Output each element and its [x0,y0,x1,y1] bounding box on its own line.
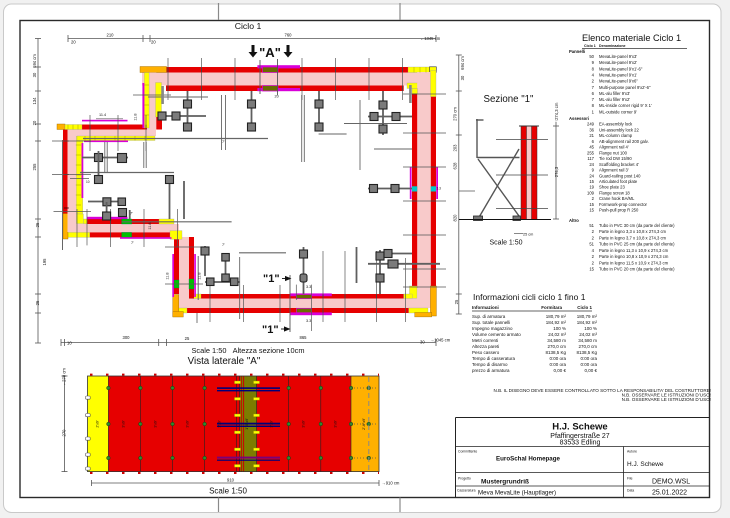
svg-text:270: 270 [62,429,67,437]
svg-text:Autore: Autore [627,450,637,454]
svg-text:Push-pull prop R 250: Push-pull prop R 250 [599,208,639,213]
svg-text:MevaLite-panel 9'x1'-6": MevaLite-panel 9'x1'-6" [599,66,643,71]
svg-text:36: 36 [589,127,594,132]
svg-text:11.8: 11.8 [198,272,202,279]
svg-text:Alignment rail 4': Alignment rail 4' [599,145,629,150]
svg-text:Multi-purpose panel 9'x2'-6": Multi-purpose panel 9'x2'-6" [599,85,651,90]
svg-text:"1": "1" [262,324,279,336]
svg-text:Parte in legno 3,3 x 10,8 x 27: Parte in legno 3,3 x 10,8 x 274,3 cm [599,229,667,234]
svg-text:255: 255 [32,163,37,171]
svg-text:↑274,3 cm: ↑274,3 cm [554,102,559,122]
svg-text:180,79 m²: 180,79 m² [546,314,567,319]
svg-text:Sup. di armatura: Sup. di armatura [472,314,506,319]
svg-text:Guard-railing post 140: Guard-railing post 140 [599,173,641,178]
svg-text:15: 15 [589,267,594,272]
svg-text:25: 25 [185,336,190,341]
svg-text:3'x9': 3'x9' [302,420,306,427]
svg-text:Alignment rail 3': Alignment rail 3' [599,168,629,173]
svg-text:21: 21 [589,133,594,138]
svg-text:Tubo in PVC 25 cm (da parte de: Tubo in PVC 25 cm (da parte del cliente) [599,242,675,247]
svg-text:10: 10 [67,341,72,346]
svg-text:30: 30 [460,75,465,80]
svg-text:DEMO.WSL: DEMO.WSL [652,479,690,486]
svg-text:MevaLite-panel 9'x1': MevaLite-panel 9'x1' [599,73,637,78]
svg-text:Parte in legno 11,3 x 10,9 x 2: Parte in legno 11,3 x 10,9 x 274,3 cm [599,248,669,253]
svg-text:H.J. Schewe: H.J. Schewe [627,461,664,468]
svg-text:34,580 m: 34,580 m [578,338,597,343]
svg-text:20: 20 [32,120,37,125]
svg-text:N.B. OSSERVARE LE ISTRUZIONI D: N.B. OSSERVARE LE ISTRUZIONI D’USO! [622,397,711,402]
svg-text:MevaLite-panel 9'x6": MevaLite-panel 9'x6" [599,79,638,84]
svg-text:100 %: 100 % [584,326,597,331]
svg-text:910: 910 [227,478,235,483]
svg-text:"1": "1" [263,273,280,285]
svg-text:EA-assembly lock: EA-assembly lock [599,122,633,127]
svg-text:3.3: 3.3 [306,285,311,289]
svg-text:Elenco materiale Ciclo 1: Elenco materiale Ciclo 1 [582,33,681,43]
svg-text:3'x9': 3'x9' [270,420,274,427]
svg-text:H.J. Schewe: H.J. Schewe [552,422,607,433]
svg-text:11.8: 11.8 [148,222,152,229]
svg-text:3'x9': 3'x9' [186,420,190,427]
svg-text:195: 195 [42,258,47,266]
svg-text:19: 19 [589,185,594,190]
svg-text:Parte in legno 11,5 x 10,9 x 2: Parte in legno 11,5 x 10,9 x 274,3 cm [599,260,669,265]
svg-text:0:00 ora: 0:00 ora [549,362,566,367]
svg-text:Tubo in PVC 20 cm (da parte de: Tubo in PVC 20 cm (da parte del cliente) [599,267,675,272]
svg-text:100 %: 100 % [553,326,566,331]
svg-text:Sezione "1": Sezione "1" [484,94,535,105]
svg-text:51: 51 [589,242,594,247]
svg-text:83533 Edling: 83533 Edling [560,440,601,447]
svg-text:←270 cm: ←270 cm [62,368,67,386]
svg-text:Vista laterale "A": Vista laterale "A" [188,356,261,367]
svg-text:Scale 1:50: Scale 1:50 [489,240,522,247]
svg-text:Assessori: Assessori [569,116,589,121]
svg-text:760: 760 [285,33,293,38]
svg-text:3.3: 3.3 [306,319,311,323]
svg-text:ML-outside corner 9': ML-outside corner 9' [599,109,637,114]
svg-text:15: 15 [589,208,594,213]
svg-text:24,02 m³: 24,02 m³ [579,332,597,337]
svg-text:15: 15 [589,202,594,207]
svg-text:694 cm: 694 cm [32,54,37,68]
svg-text:3'x9': 3'x9' [122,420,126,427]
svg-text:3'x9': 3'x9' [334,420,338,427]
svg-text:50: 50 [589,54,594,59]
svg-text:Articulated foot plate: Articulated foot plate [599,179,638,184]
svg-text:25: 25 [454,299,459,304]
svg-text:Sup. totale pannelli: Sup. totale pannelli [472,320,510,325]
svg-text:11.4: 11.4 [99,113,106,117]
svg-text:File: File [627,477,633,481]
svg-text:ML-alu filler 9'x2': ML-alu filler 9'x2' [599,97,630,102]
svg-text:184,92 m²: 184,92 m² [546,320,567,325]
svg-text:109: 109 [587,191,595,196]
svg-text:ML-alu filler 9'x3': ML-alu filler 9'x3' [599,91,630,96]
svg-text:Committente: Committente [458,450,477,454]
svg-text:Tie rod DW 15/90: Tie rod DW 15/90 [599,156,632,161]
svg-text:Ciclo 1: Ciclo 1 [577,305,592,310]
svg-text:Data: Data [627,489,634,493]
svg-text:274,3: 274,3 [554,166,559,177]
svg-text:2'-6"x9': 2'-6"x9' [362,418,366,430]
svg-text:20: 20 [151,40,156,45]
svg-text:Tempo di disarmo: Tempo di disarmo [472,362,508,367]
svg-text:51: 51 [589,223,594,228]
svg-text:EuroSchal Homepage: EuroSchal Homepage [496,456,561,463]
svg-text:Formwork-prop connector: Formwork-prop connector [599,202,648,207]
svg-text:Scale 1:50: Scale 1:50 [209,487,247,496]
svg-text:Parte in legno 10,8 x 10,9 x 2: Parte in legno 10,8 x 10,9 x 274,3 cm [599,254,669,259]
svg-text:MevaLite-panel 9'x3': MevaLite-panel 9'x3' [599,54,637,59]
svg-text:Altezza pareti: Altezza pareti [472,344,499,349]
svg-text:8138,5 Kg: 8138,5 Kg [576,350,597,355]
svg-text:Tubo in PVC 30 cm (da parte de: Tubo in PVC 30 cm (da parte del cliente) [599,223,675,228]
svg-text:Flange nut 100: Flange nut 100 [599,150,628,155]
svg-text:184,92 m²: 184,92 m² [577,320,598,325]
svg-text:865: 865 [300,335,308,340]
svg-text:7': 7' [222,243,225,247]
svg-text:Pannelli: Pannelli [569,49,585,54]
svg-text:Ciclo 1: Ciclo 1 [235,21,262,31]
svg-text:117: 117 [587,156,594,161]
svg-text:24: 24 [589,173,594,178]
svg-text:Metri correnti: Metri correnti [472,338,498,343]
svg-text:Ciclo 1: Ciclo 1 [584,44,596,48]
svg-text:Shoe plate 23: Shoe plate 23 [599,185,626,190]
svg-text:10: 10 [86,180,90,184]
svg-text:15: 15 [589,179,594,184]
svg-text:AB-alignment rail 200 galv.: AB-alignment rail 200 galv. [599,139,649,144]
svg-text:Altro: Altro [569,218,579,223]
svg-text:11.8: 11.8 [166,272,170,279]
svg-text:25: 25 [35,222,40,227]
svg-text:7': 7' [130,212,133,216]
svg-text:30: 30 [32,72,37,77]
svg-text:Denominazione: Denominazione [599,44,626,48]
svg-text:MevaLite-panel 9'x2': MevaLite-panel 9'x2' [599,60,637,65]
svg-text:"A": "A" [259,45,281,60]
svg-text:Informazioni: Informazioni [472,305,499,310]
svg-text:7': 7' [131,241,134,245]
svg-text:Peso cassero: Peso cassero [472,350,500,355]
svg-text:0,00 €: 0,00 € [584,368,597,373]
svg-text:30: 30 [420,340,425,345]
svg-text:24,02 m³: 24,02 m³ [548,332,566,337]
svg-text:300: 300 [123,335,131,340]
svg-text:Crane hook BA/ML: Crane hook BA/ML [599,196,635,201]
svg-text:Meva MevaLite (Hauptlager): Meva MevaLite (Hauptlager) [478,490,556,497]
svg-text:180,79 m²: 180,79 m² [577,314,598,319]
svg-text:34,580 m: 34,580 m [547,338,566,343]
svg-text:249: 249 [587,122,595,127]
svg-text:→1045 cm: →1045 cm [430,338,451,343]
svg-text:→910 cm: →910 cm [382,481,400,486]
svg-text:0,00 €: 0,00 € [553,368,566,373]
svg-text:7': 7' [222,140,225,144]
svg-text:45: 45 [589,145,594,150]
svg-text:25: 25 [35,300,40,305]
svg-text:8138,5 Kg: 8138,5 Kg [545,350,566,355]
svg-text:←1345 cm: ←1345 cm [420,36,441,41]
svg-text:20: 20 [71,40,76,45]
svg-text:ML-column clamp: ML-column clamp [599,133,633,138]
svg-text:Uni-assembly lock 22: Uni-assembly lock 22 [599,127,639,132]
svg-text:Flange screw 18: Flange screw 18 [599,191,630,196]
svg-text:270,0 cm: 270,0 cm [578,344,597,349]
svg-text:270,0 cm: 270,0 cm [547,344,566,349]
svg-text:1'-6"x9': 1'-6"x9' [245,418,249,430]
svg-text:25.01.2022: 25.01.2022 [652,490,687,497]
svg-text:Casseratura: Casseratura [457,489,476,493]
svg-text:134: 134 [32,97,37,105]
svg-text:ML-inside corner rigid 9' X 1': ML-inside corner rigid 9' X 1' [599,103,652,108]
svg-text:203: 203 [453,144,458,152]
svg-text:25 cm: 25 cm [523,233,533,237]
svg-text:Informazioni cicli ciclo 1 fi: Informazioni cicli ciclo 1 fino 1 [473,292,586,302]
svg-text:0:00 ora: 0:00 ora [549,356,566,361]
svg-text:255: 255 [587,150,595,155]
svg-text:20: 20 [275,95,279,99]
svg-text:0:00 ora: 0:00 ora [580,356,597,361]
svg-text:Volume cemento armato: Volume cemento armato [472,332,521,337]
svg-text:Tempo di casseratura: Tempo di casseratura [472,356,516,361]
svg-text:210: 210 [107,33,115,38]
svg-text:Formitara: Formitara [541,305,562,310]
svg-text:3'x9': 3'x9' [218,420,222,427]
svg-text:2'x9': 2'x9' [96,420,100,427]
svg-text:prezzo di armatura: prezzo di armatura [472,368,510,373]
svg-text:0:00 ora: 0:00 ora [580,362,597,367]
svg-text:694 cm: 694 cm [460,56,465,70]
svg-text:Parte in legno 3,7 x 10,8 x 27: Parte in legno 3,7 x 10,8 x 274,3 cm [599,235,667,240]
svg-text:11.8: 11.8 [134,113,138,120]
svg-text:24: 24 [589,162,594,167]
svg-text:3'x9': 3'x9' [154,420,158,427]
svg-text:Impegno magazzino: Impegno magazzino [472,326,513,331]
svg-text:Scaffolding bracket 4': Scaffolding bracket 4' [599,162,639,167]
svg-text:Scale 1:50 Altezza sezione 1: Scale 1:50 Altezza sezione 10cm [192,346,305,355]
svg-text:Progetto: Progetto [458,477,471,481]
svg-text:3.3: 3.3 [437,187,442,191]
svg-text:270 cm: 270 cm [453,107,458,121]
svg-text:Mustergrundriß: Mustergrundriß [481,479,529,486]
svg-text:820: 820 [453,214,458,222]
svg-text:628: 628 [453,162,458,170]
